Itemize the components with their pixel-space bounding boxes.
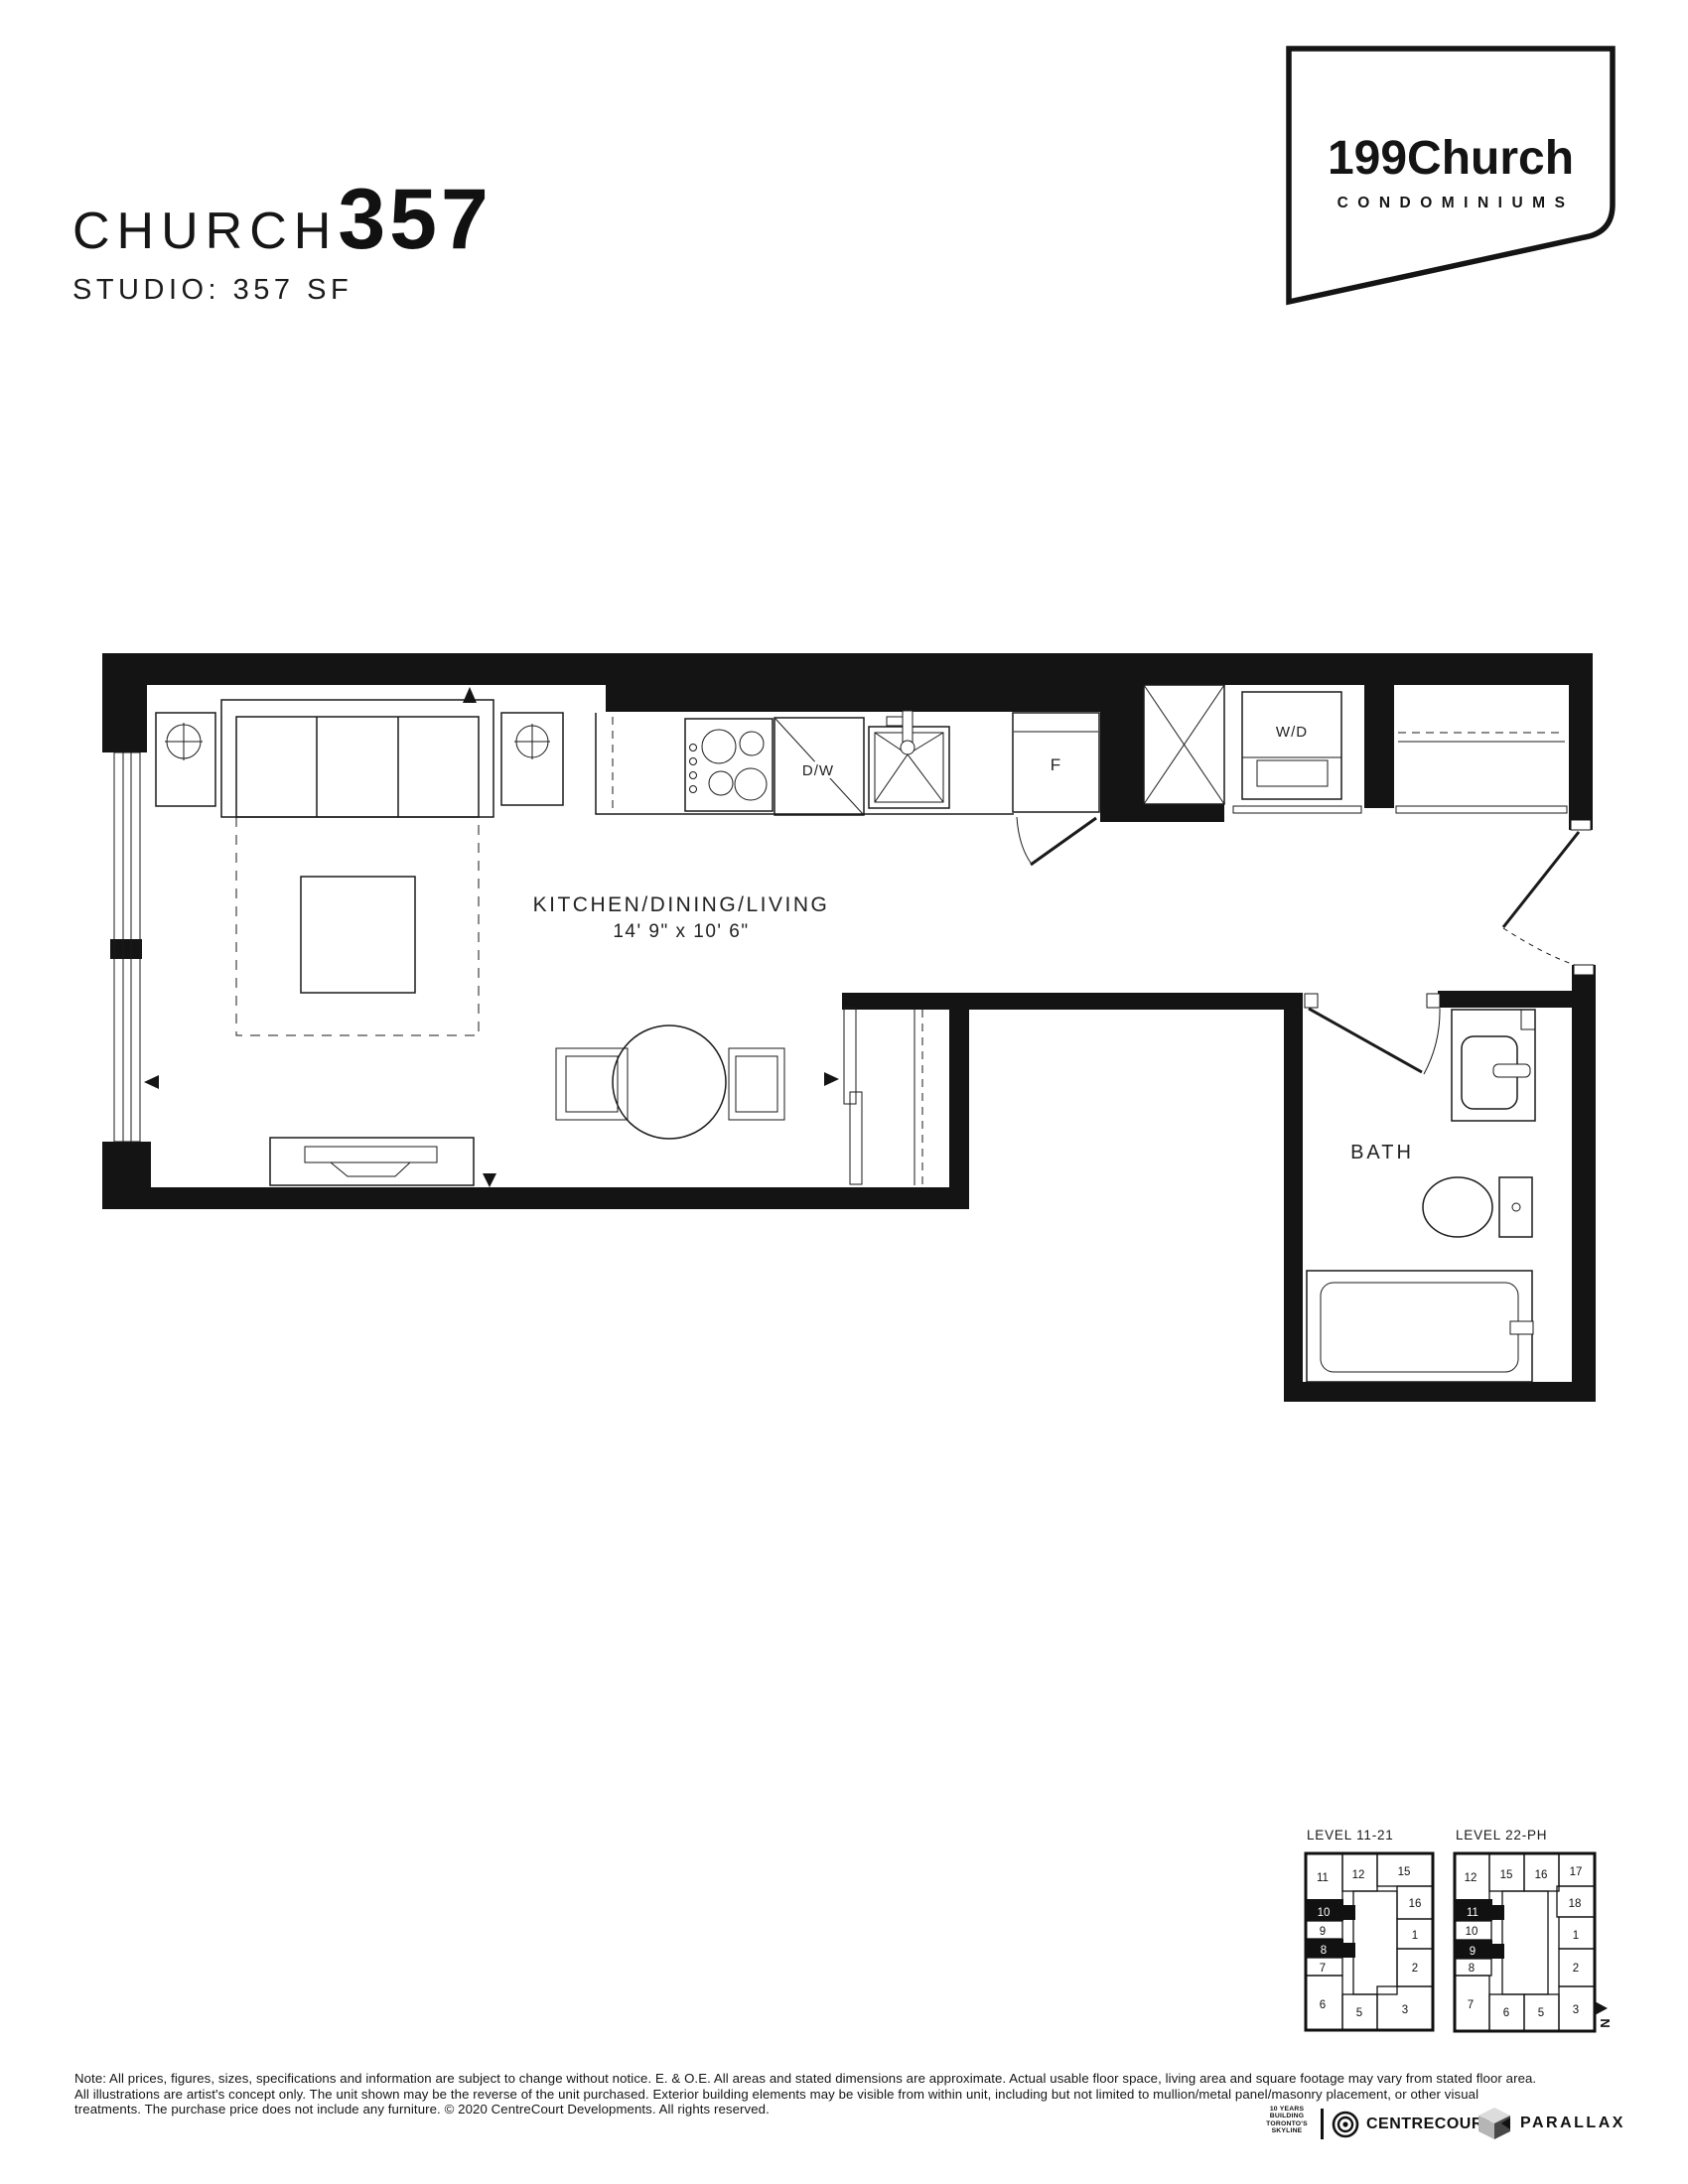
- keyplan-unit-cell: 3: [1402, 2004, 1408, 2016]
- kitchen-sink: [869, 711, 949, 808]
- washer-dryer: W/D: [1233, 692, 1361, 813]
- north-arrow-icon: N: [1595, 2001, 1613, 2028]
- keyplan-unit-cell: 2: [1573, 1963, 1579, 1975]
- keyplan-unit-cell: 3: [1573, 2004, 1579, 2016]
- badge-line: TORONTO'S: [1261, 2120, 1313, 2127]
- badge-line: BUILDING: [1261, 2113, 1313, 2119]
- keyplan-2-title: LEVEL 22-PH: [1456, 1828, 1547, 1843]
- coffee-table: [301, 877, 415, 993]
- dishwasher-label: D/W: [802, 762, 834, 779]
- keyplan-unit-cell: 16: [1535, 1869, 1548, 1881]
- keyplan-unit-cell: 5: [1538, 2007, 1544, 2019]
- keyplan-unit-cell: 12: [1352, 1869, 1365, 1881]
- bath-room-label: BATH: [1350, 1142, 1414, 1163]
- fridge: F: [1013, 713, 1099, 812]
- bath-door: [1309, 1009, 1440, 1074]
- kitchen-door: [1017, 817, 1096, 865]
- keyplan-unit-cell: 18: [1569, 1898, 1582, 1910]
- footer-divider: [1321, 2109, 1324, 2139]
- keyplan-unit-cell: 6: [1503, 2007, 1509, 2019]
- keyplan-level-11-21: 11 12 15 16 1 2 3 5 6 7 8 9 10: [1306, 1853, 1433, 2030]
- centrecourt-logo: CENTRECOURT: [1332, 2111, 1493, 2138]
- fridge-label: F: [1051, 755, 1060, 774]
- entry-door: [1503, 832, 1579, 965]
- disclaimer-line-2: All illustrations are artist's concept o…: [74, 2087, 1536, 2103]
- area-rug: [236, 817, 479, 1035]
- tv-console: [270, 1138, 474, 1185]
- floor-plan: D/W F W/D: [0, 0, 1688, 2184]
- disclaimer-line-3: treatments. The purchase price does not …: [74, 2102, 1536, 2117]
- keyplan-level-22-ph: 12 15 16 17 18 1 2 3 5 6 7 8 9 10 11: [1455, 1853, 1595, 2031]
- dishwasher: D/W: [774, 718, 864, 815]
- keyplan-unit-cell-highlighted: 10: [1318, 1907, 1331, 1919]
- keyplan-unit-cell: 16: [1409, 1898, 1422, 1910]
- dining-table: [613, 1025, 726, 1139]
- keyplan-unit-cell: 12: [1465, 1872, 1477, 1884]
- keyplan-unit-cell-highlighted: 9: [1470, 1946, 1476, 1958]
- keyplan-unit-cell: 15: [1500, 1869, 1513, 1881]
- badge-line: 10 YEARS: [1261, 2106, 1313, 2113]
- side-table-right: [501, 713, 563, 805]
- cooktop: [685, 719, 773, 811]
- keyplan-unit-cell: 1: [1573, 1930, 1579, 1942]
- parallax-logo: PARALLAX: [1477, 2108, 1625, 2139]
- centrecourt-label: CENTRECOURT: [1366, 2116, 1493, 2133]
- walls: [102, 653, 1596, 1402]
- washer-dryer-label: W/D: [1276, 724, 1308, 741]
- keyplan-unit-cell: 2: [1412, 1963, 1418, 1975]
- disclaimer-line-1: Note: All prices, figures, sizes, specif…: [74, 2071, 1536, 2087]
- parallax-cube-icon: [1477, 2108, 1511, 2139]
- disclaimer: Note: All prices, figures, sizes, specif…: [74, 2071, 1536, 2117]
- keyplan-unit-cell: 10: [1466, 1926, 1478, 1938]
- keyplan-unit-cell-highlighted: 11: [1467, 1907, 1478, 1919]
- keyplan-unit-cell: 17: [1570, 1866, 1583, 1878]
- toilet: [1423, 1177, 1532, 1237]
- years-building-badge: 10 YEARS BUILDING TORONTO'S SKYLINE: [1261, 2106, 1313, 2134]
- room-dimensions: 14' 9" x 10' 6": [613, 921, 749, 942]
- keyplan-unit-cell: 7: [1320, 1963, 1326, 1975]
- north-arrow-label: N: [1598, 2018, 1613, 2027]
- keyplan-unit-cell: 9: [1320, 1926, 1326, 1938]
- keyplan-unit-cell: 5: [1356, 2007, 1362, 2019]
- keyplan-unit-cell: 6: [1320, 1999, 1326, 2011]
- room-label: KITCHEN/DINING/LIVING: [533, 893, 830, 916]
- hall-closet: [844, 1008, 922, 1185]
- parallax-label: PARALLAX: [1520, 2115, 1625, 2132]
- dining-chair-right: [729, 1048, 784, 1120]
- sofa: [221, 700, 493, 817]
- centrecourt-icon: [1332, 2111, 1359, 2138]
- badge-line: SKYLINE: [1261, 2127, 1313, 2134]
- bathroom-vanity: [1452, 1010, 1535, 1121]
- entry-closet: [1396, 733, 1567, 813]
- mechanical-shaft: [1144, 685, 1224, 804]
- keyplan-unit-cell: 11: [1317, 1872, 1329, 1884]
- keyplan-unit-cell: 1: [1412, 1930, 1418, 1942]
- bathtub: [1307, 1271, 1533, 1382]
- side-table-left: [156, 713, 215, 806]
- keyplan-unit-cell: 8: [1469, 1963, 1475, 1975]
- keyplan-1-title: LEVEL 11-21: [1307, 1828, 1394, 1843]
- keyplan-unit-cell-highlighted: 8: [1321, 1945, 1327, 1957]
- keyplan-unit-cell: 15: [1398, 1866, 1411, 1878]
- keyplan-unit-cell: 7: [1468, 1999, 1474, 2011]
